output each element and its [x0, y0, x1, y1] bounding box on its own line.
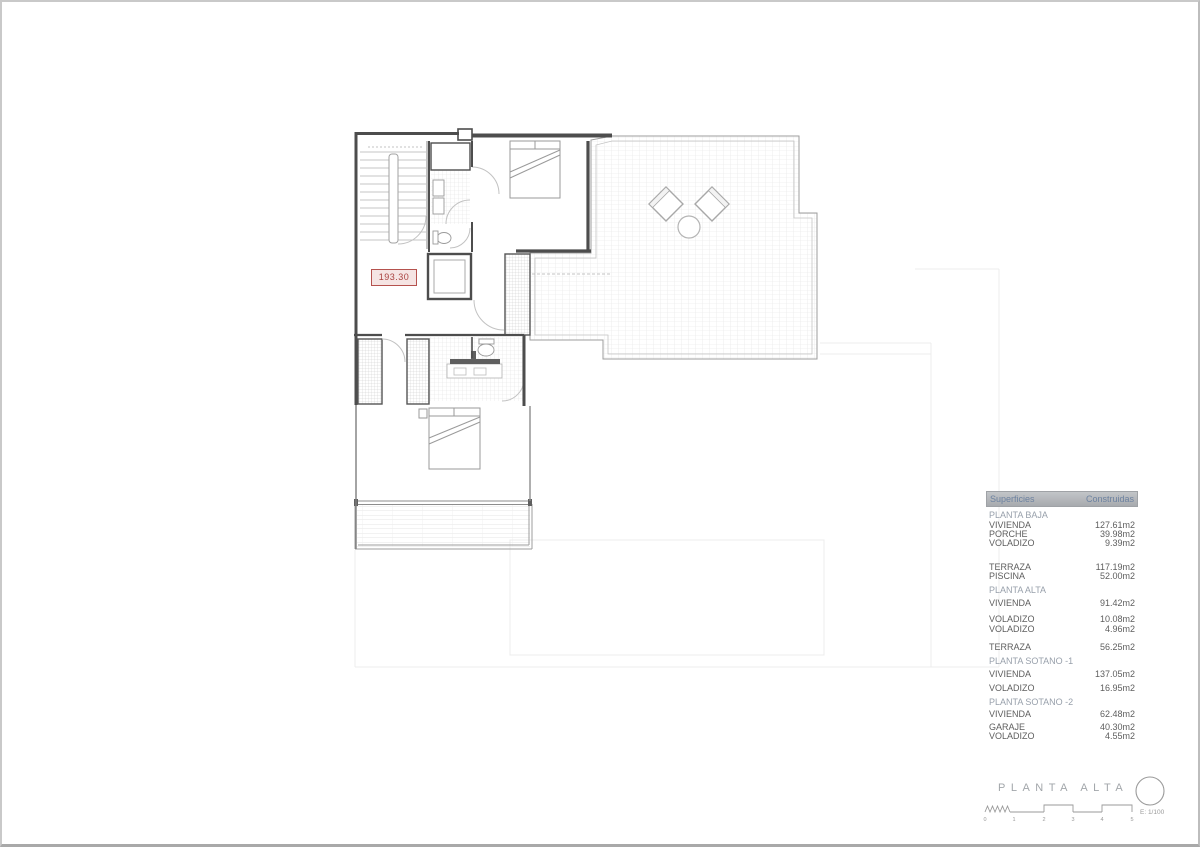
row-value: 9.39m2: [1105, 538, 1135, 548]
table-row: VIVIENDA137.05m2: [986, 669, 1138, 679]
col-construidas: Construidas: [1086, 494, 1134, 504]
table-row: VOLADIZO4.96m2: [986, 624, 1138, 634]
col-superficies: Superficies: [990, 494, 1035, 504]
table-row: PLANTA SOTANO -1: [986, 656, 1138, 666]
row-value: 62.48m2: [1100, 709, 1135, 719]
row-label: VIVIENDA: [989, 598, 1031, 608]
row-value: 52.00m2: [1100, 571, 1135, 581]
terrace-grid: [530, 136, 817, 359]
row-value: 4.96m2: [1105, 624, 1135, 634]
table-row: VOLADIZO10.08m2: [986, 614, 1138, 624]
row-label: VIVIENDA: [989, 669, 1031, 679]
table-row: VOLADIZO4.55m2: [986, 731, 1138, 741]
row-label: VOLADIZO: [989, 683, 1035, 693]
row-value: 137.05m2: [1095, 669, 1135, 679]
row-value: 91.42m2: [1100, 598, 1135, 608]
wardrobe-hall: [505, 254, 530, 335]
row-value: 16.95m2: [1100, 683, 1135, 693]
table-row: VOLADIZO9.39m2: [986, 538, 1138, 548]
drawing-sheet: 193.30 Superficies Construidas PLANTA BA…: [0, 0, 1200, 847]
table-row: VIVIENDA62.48m2: [986, 709, 1138, 719]
row-label: PISCINA: [989, 571, 1025, 581]
bed-lower: [419, 408, 480, 469]
row-label: PLANTA SOTANO -2: [989, 697, 1073, 707]
table-header: Superficies Construidas: [986, 491, 1138, 507]
row-label: PLANTA SOTANO -1: [989, 656, 1073, 666]
shaft: [428, 254, 471, 299]
terrace-lower: [355, 504, 532, 549]
row-label: VOLADIZO: [989, 538, 1035, 548]
row-label: PLANTA ALTA: [989, 585, 1046, 595]
stairs: [360, 141, 427, 249]
table-row: VIVIENDA91.42m2: [986, 598, 1138, 608]
surfaces-table: Superficies Construidas PLANTA BAJA VIVI…: [986, 489, 1138, 749]
vanity-bar: [450, 359, 500, 364]
terrace-main: [530, 136, 817, 359]
table-row: PISCINA52.00m2: [986, 571, 1138, 581]
row-label: VIVIENDA: [989, 709, 1031, 719]
row-label: VOLADIZO: [989, 624, 1035, 634]
vanity-counter: [447, 364, 502, 378]
table-row: PLANTA ALTA: [986, 585, 1138, 595]
bathroom-core-tiles: [431, 170, 470, 224]
wardrobe-right: [407, 339, 429, 404]
table-row: TERRAZA56.25m2: [986, 642, 1138, 652]
bed-upper: [510, 141, 560, 198]
row-value: 56.25m2: [1100, 642, 1135, 652]
toilet-main: [478, 344, 494, 356]
row-label: TERRAZA: [989, 642, 1031, 652]
side-table-round: [678, 216, 700, 238]
area-label: 193.30: [371, 269, 417, 286]
row-label: PLANTA BAJA: [989, 510, 1048, 520]
table-row: PLANTA SOTANO -2: [986, 697, 1138, 707]
table-row: PLANTA BAJA: [986, 510, 1138, 520]
glass-wall: [354, 499, 532, 506]
wardrobe-left: [358, 339, 382, 404]
row-label: VOLADIZO: [989, 731, 1035, 741]
sheet-title: PLANTA ALTA: [998, 782, 1128, 794]
row-label: VOLADIZO: [989, 614, 1035, 624]
row-value: 4.55m2: [1105, 731, 1135, 741]
table-row: VOLADIZO16.95m2: [986, 683, 1138, 693]
row-value: 10.08m2: [1100, 614, 1135, 624]
toilet-core: [437, 233, 451, 244]
